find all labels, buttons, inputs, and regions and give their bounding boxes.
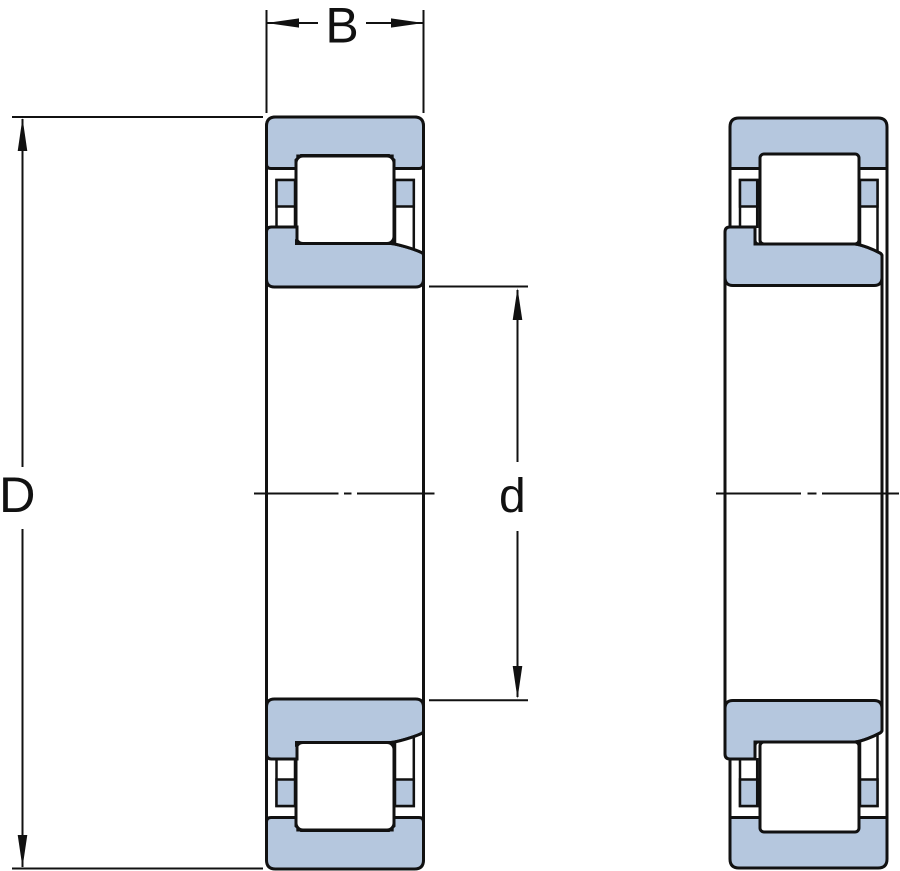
svg-text:D: D <box>0 466 35 523</box>
svg-text:B: B <box>325 0 358 53</box>
svg-text:d: d <box>499 470 526 523</box>
